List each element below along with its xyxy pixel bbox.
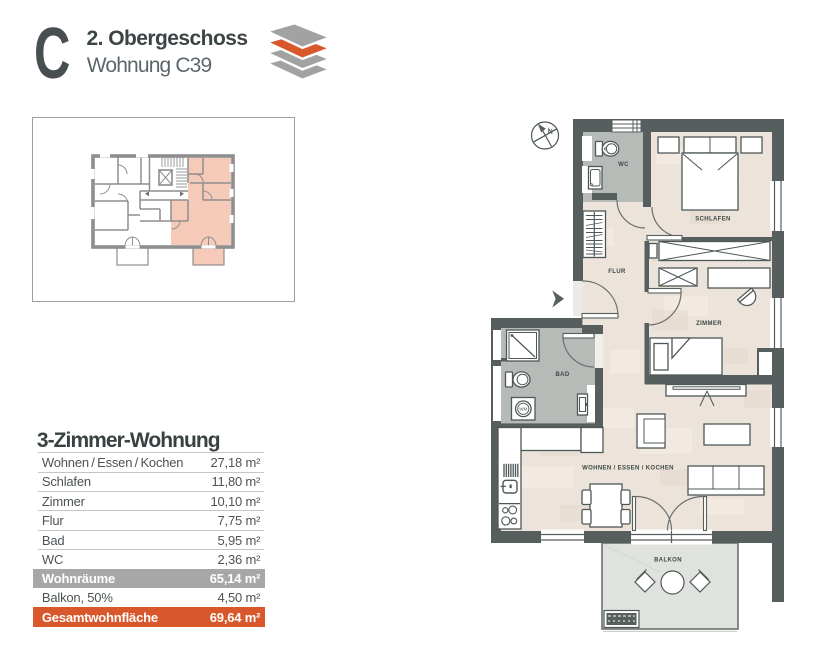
- svg-text:WOHNEN / ESSEN / KOCHEN: WOHNEN / ESSEN / KOCHEN: [582, 466, 674, 472]
- svg-text:BALKON: BALKON: [654, 558, 682, 564]
- svg-text:SCHLAFEN: SCHLAFEN: [695, 217, 730, 223]
- svg-text:FLUR: FLUR: [608, 269, 626, 275]
- svg-text:WC: WC: [618, 162, 629, 168]
- svg-text:ZIMMER: ZIMMER: [696, 321, 722, 327]
- svg-text:WM: WM: [519, 407, 527, 412]
- svg-text:BAD: BAD: [555, 372, 569, 378]
